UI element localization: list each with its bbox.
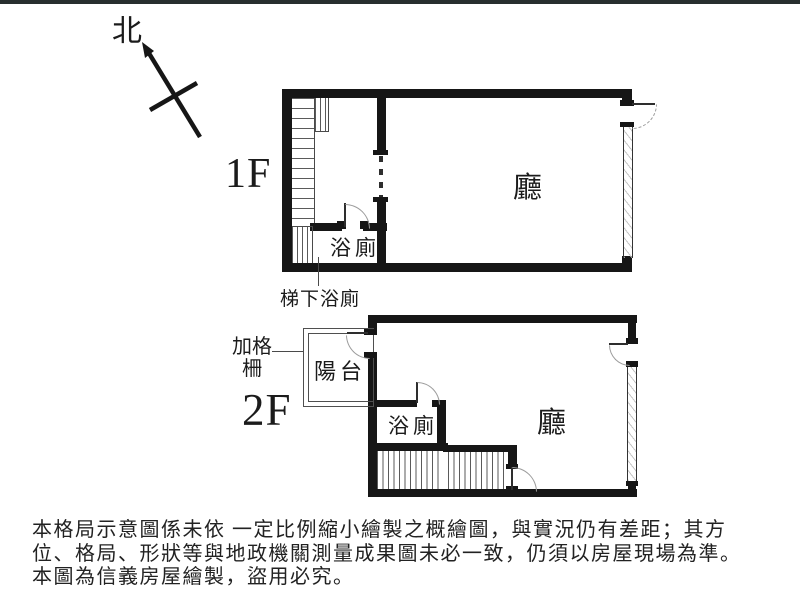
f1-stairs-turn-edge-bottom: [315, 131, 329, 132]
disclaimer-line-2: 位、格局、形狀等與地政機關測量成果圖未必一致，仍須以房屋現場為準。: [32, 543, 784, 567]
floor1-tag: 1F: [225, 150, 271, 198]
f1-wall-bottom: [282, 263, 632, 272]
floor-plan-canvas: 北 1F 廳 浴廁 梯下浴廁 2F 廳 浴廁 陽台 加格柵 本格局示意圖係未依 …: [0, 0, 800, 599]
f1-stairs-turn-edge-right: [328, 98, 329, 132]
f2-stairs-right-run: [448, 452, 508, 489]
f2-stair-step-wall: [443, 445, 517, 452]
f2-entry-door-swing: [609, 345, 630, 366]
f1-wall-left: [282, 89, 292, 272]
disclaimer-line-1: 本格局示意圖係未依 一定比例縮小繪製之概繪圖，與實況仍有差距；其方: [32, 519, 784, 543]
f1-wall-interior-upper: [377, 89, 386, 152]
f2-window-cap-bottom: [626, 481, 638, 486]
f2-wall-bottom: [368, 489, 637, 497]
f2-stair-door-swing: [512, 467, 537, 492]
f1-interior-cap-bottom: [373, 197, 388, 202]
floor2-grille-label: 加格柵: [229, 336, 275, 380]
disclaimer-text: 本格局示意圖係未依 一定比例縮小繪製之概繪圖，與實況仍有差距；其方 位、格局、形…: [32, 519, 784, 590]
f1-stairs-main: [292, 98, 315, 223]
f2-bath-wall-bottom: [368, 443, 448, 451]
f1-stairs-upper-turn: [315, 98, 328, 131]
north-arrow-icon: [128, 36, 212, 144]
f1-understair-leader-line: [318, 257, 319, 286]
f2-wall-top: [368, 315, 637, 323]
f1-interior-opening-dashed: [379, 156, 383, 198]
f1-window-right: [623, 127, 633, 258]
f1-wall-right-bottom: [622, 256, 632, 272]
floor1-understair-bath-label: 梯下浴廁: [280, 284, 360, 311]
f1-stairs-under: [292, 227, 312, 263]
floor2-bath-label: 浴廁: [388, 410, 438, 440]
f1-understair-edge: [312, 227, 313, 263]
floor2-hall-label: 廳: [537, 399, 566, 441]
f2-balcony-door-leaf: [347, 332, 368, 334]
floor1-hall-label: 廳: [513, 164, 542, 206]
floor2-tag: 2F: [242, 384, 292, 436]
f1-understair-top-edge: [292, 226, 313, 227]
disclaimer-line-3: 本圖為信義房屋繪製，盜用必究。: [32, 566, 784, 590]
f1-wall-top: [282, 89, 632, 98]
f2-stairs-left-run: [377, 451, 443, 489]
f1-stairs-divider: [314, 98, 315, 223]
f2-bath-door-swing: [417, 382, 440, 405]
f2-window-right: [627, 366, 637, 481]
f1-interior-cap-top: [373, 150, 388, 155]
f1-bath-door-swing: [345, 204, 370, 229]
f2-grille-leader-line: [272, 351, 303, 352]
top-border-strip: [0, 0, 800, 4]
f1-entry-door-swing: [632, 104, 657, 129]
floor2-balcony-label: 陽台: [314, 354, 366, 386]
f2-bath-wall-top: [368, 400, 415, 407]
floor1-bath-label: 浴廁: [330, 232, 380, 262]
